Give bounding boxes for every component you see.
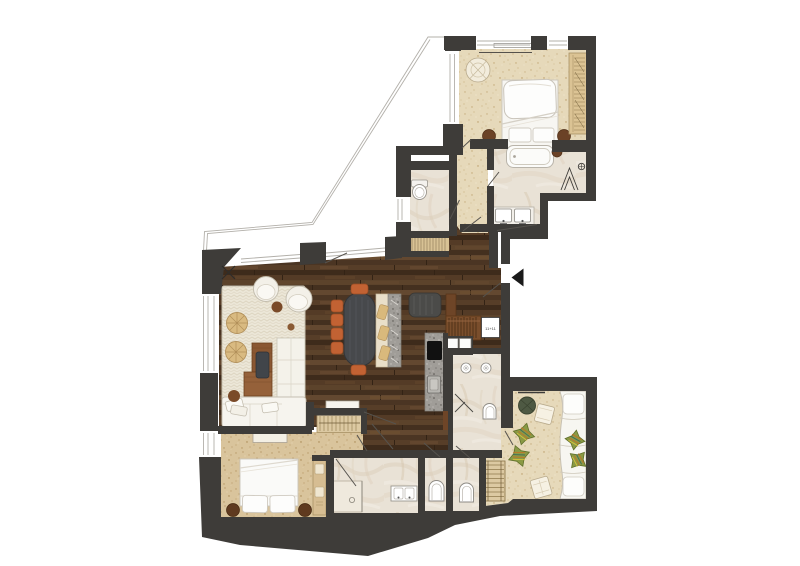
svg-text:11+11: 11+11 — [485, 326, 496, 331]
